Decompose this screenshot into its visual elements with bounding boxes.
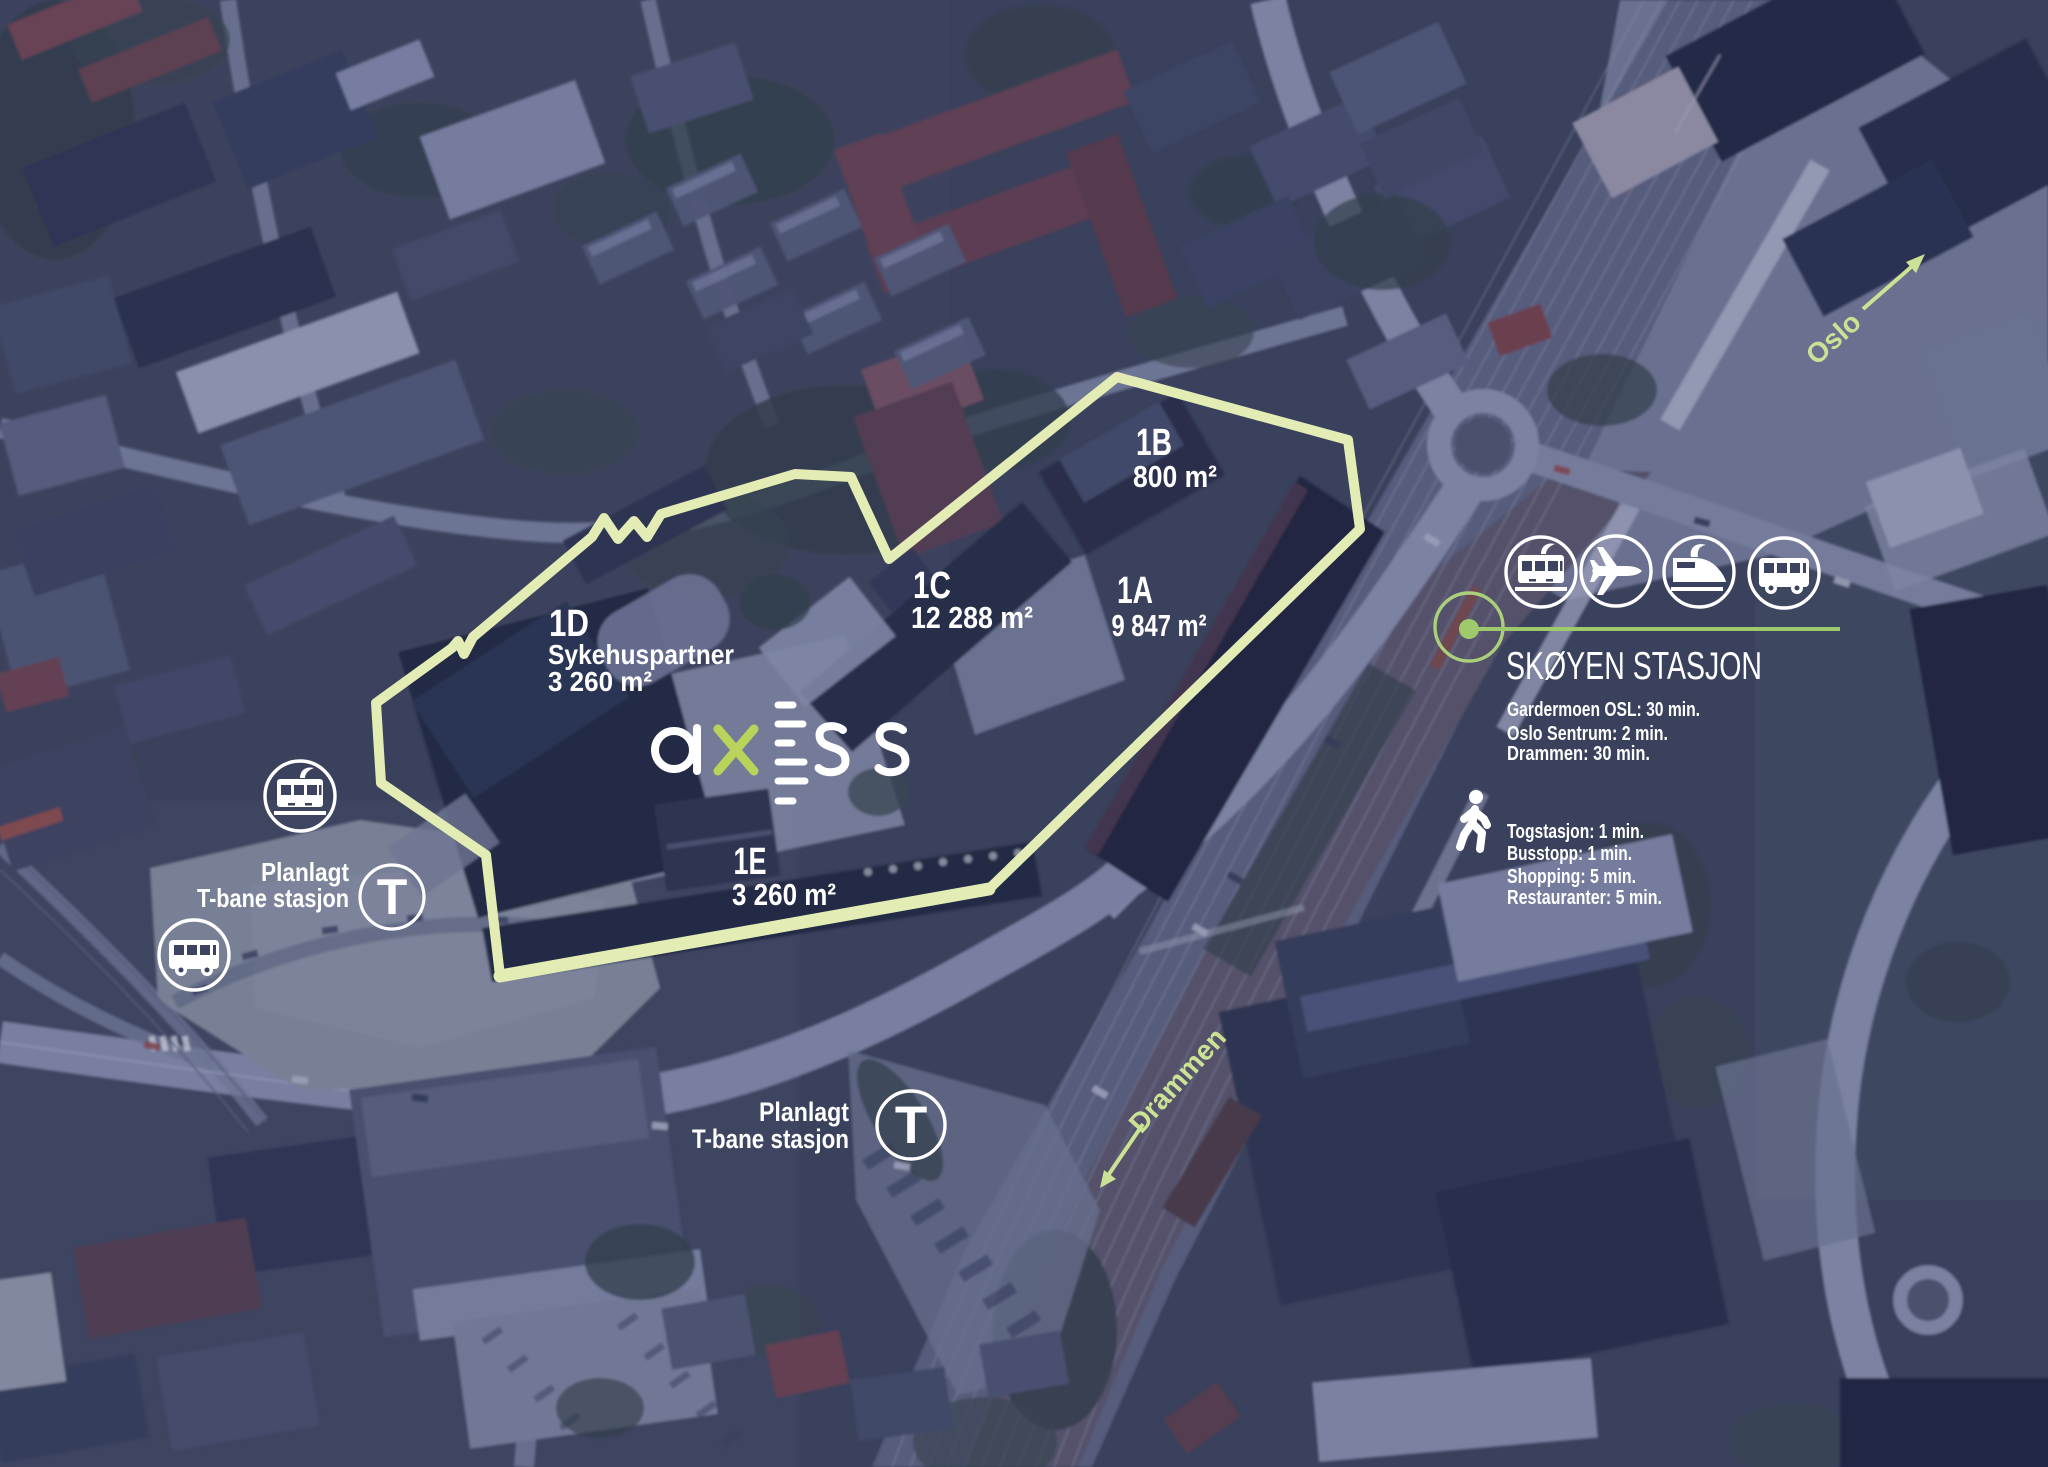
svg-text:12 288 m²: 12 288 m² <box>911 600 1033 635</box>
svg-text:Drammen: 30 min.: Drammen: 30 min. <box>1507 743 1650 765</box>
svg-text:SKØYEN STASJON: SKØYEN STASJON <box>1506 645 1762 688</box>
svg-text:Oslo Sentrum: 2 min.: Oslo Sentrum: 2 min. <box>1507 723 1668 745</box>
svg-text:Planlagt: Planlagt <box>759 1097 849 1127</box>
svg-text:3 260 m²: 3 260 m² <box>548 666 652 697</box>
svg-text:3 260 m²: 3 260 m² <box>732 877 836 912</box>
svg-text:Busstopp: 1 min.: Busstopp: 1 min. <box>1507 843 1632 865</box>
svg-text:800 m²: 800 m² <box>1133 459 1217 494</box>
svg-text:Shopping: 5 min.: Shopping: 5 min. <box>1507 866 1636 888</box>
svg-text:1B: 1B <box>1136 422 1172 464</box>
svg-text:9 847 m²: 9 847 m² <box>1112 608 1207 643</box>
svg-text:Restauranter: 5 min.: Restauranter: 5 min. <box>1507 887 1662 909</box>
svg-text:T: T <box>895 1096 927 1155</box>
svg-text:T-bane stasjon: T-bane stasjon <box>692 1124 849 1154</box>
svg-text:1A: 1A <box>1117 570 1153 612</box>
svg-text:Togstasjon: 1 min.: Togstasjon: 1 min. <box>1507 821 1644 843</box>
svg-text:Gardermoen OSL: 30 min.: Gardermoen OSL: 30 min. <box>1507 699 1700 721</box>
svg-text:T: T <box>377 869 408 925</box>
svg-text:T-bane stasjon: T-bane stasjon <box>197 883 349 913</box>
